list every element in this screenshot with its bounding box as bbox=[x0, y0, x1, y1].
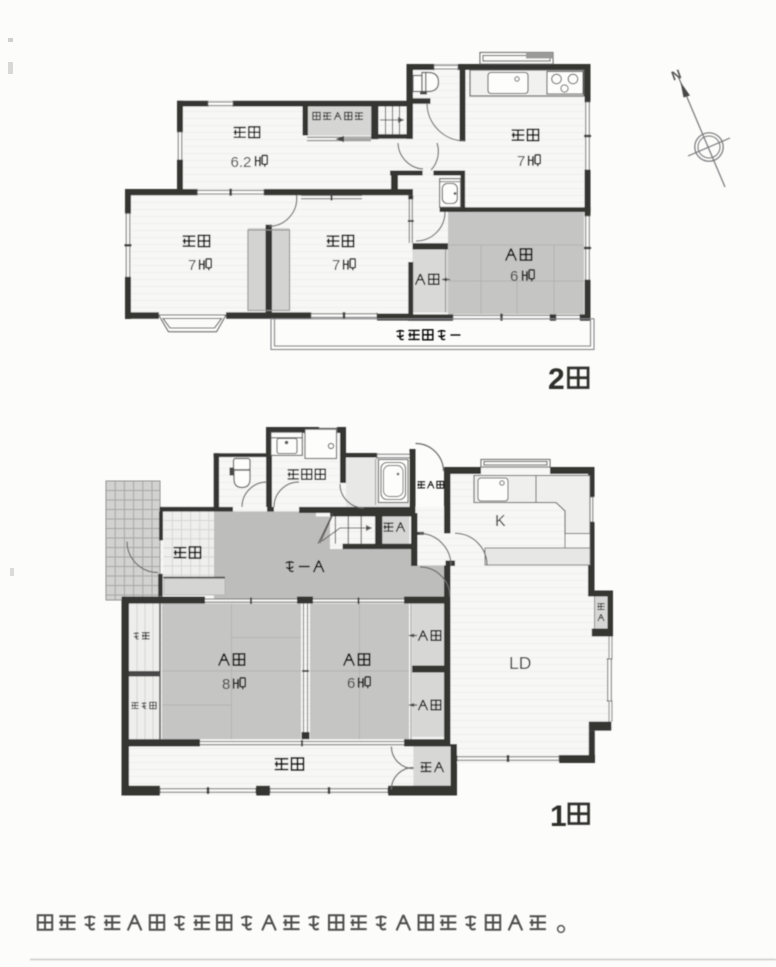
svg-text:8: 8 bbox=[222, 676, 230, 693]
svg-text:6.2: 6.2 bbox=[231, 154, 252, 171]
svg-text:K: K bbox=[495, 513, 506, 530]
svg-text:7: 7 bbox=[517, 153, 525, 170]
svg-text:6: 6 bbox=[347, 675, 355, 692]
svg-text:2: 2 bbox=[548, 363, 565, 396]
svg-text:7: 7 bbox=[332, 257, 340, 274]
svg-text:1: 1 bbox=[550, 800, 567, 833]
svg-text:7: 7 bbox=[188, 257, 196, 274]
svg-text:LD: LD bbox=[509, 653, 531, 673]
svg-text:6: 6 bbox=[510, 268, 518, 285]
